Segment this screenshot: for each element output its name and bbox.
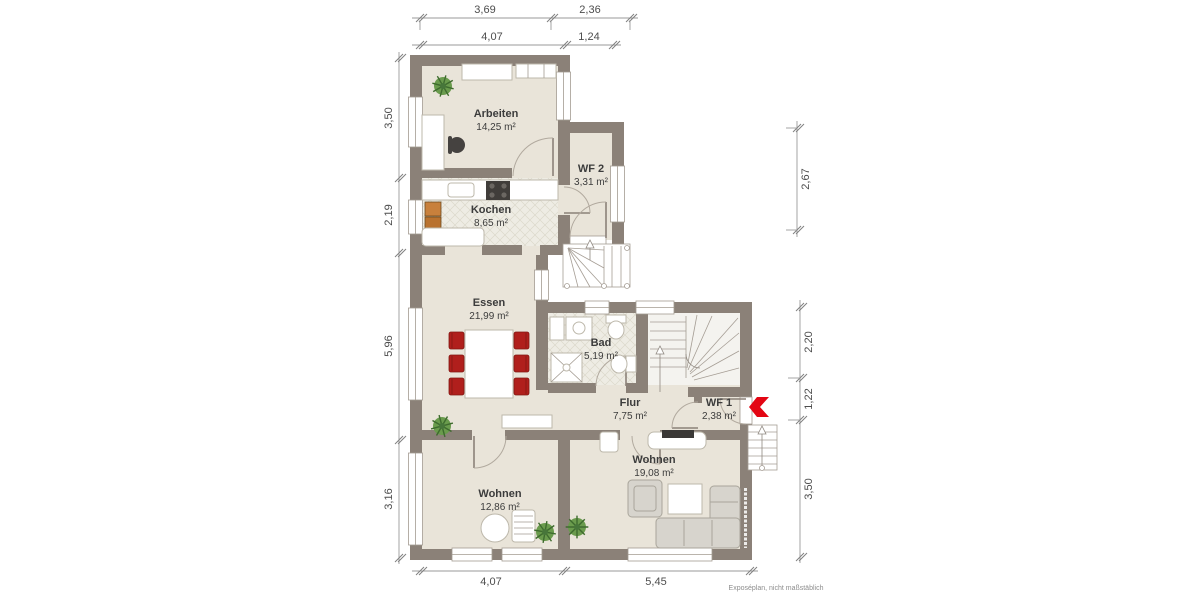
window-wohnen-gross-bottom: [628, 548, 712, 561]
dim-top-outer: 3,69 2,36: [412, 4, 638, 30]
kitchen-counter-lower: [422, 228, 484, 246]
window-bad-top: [585, 301, 609, 314]
window-essen-left: [409, 308, 423, 400]
svg-text:Wohnen: Wohnen: [478, 488, 521, 500]
svg-text:4,07: 4,07: [481, 31, 502, 43]
floorplan-drawing: Arbeiten14,25 m² WF 23,31 m² Kochen8,65 …: [0, 0, 1200, 600]
svg-text:12,86 m²: 12,86 m²: [480, 502, 520, 513]
svg-text:19,08 m²: 19,08 m²: [634, 468, 674, 479]
washing-machine: [566, 317, 592, 340]
svg-text:2,38 m²: 2,38 m²: [702, 411, 737, 422]
svg-text:7,75 m²: 7,75 m²: [613, 411, 648, 422]
footer-note: Exposéplan, nicht maßstäblich: [729, 585, 824, 592]
svg-text:1,22: 1,22: [803, 388, 815, 409]
oven: [425, 202, 441, 216]
dim-bottom: 4,07 5,45: [412, 567, 758, 588]
floorplan-page: Arbeiten14,25 m² WF 23,31 m² Kochen8,65 …: [0, 0, 1200, 600]
svg-text:Bad: Bad: [591, 337, 612, 349]
window-stairwell-top: [636, 301, 674, 314]
svg-text:Arbeiten: Arbeiten: [474, 108, 519, 120]
svg-text:2,36: 2,36: [579, 4, 600, 16]
coffee-table: [668, 484, 702, 514]
dim-left: 3,50 2,19 5,96 3,16: [383, 52, 406, 564]
svg-text:5,19 m²: 5,19 m²: [584, 351, 619, 362]
window-essen-right: [535, 270, 549, 300]
window-kochen-left: [409, 200, 423, 234]
svg-text:8,65 m²: 8,65 m²: [474, 218, 509, 229]
svg-text:Kochen: Kochen: [471, 204, 512, 216]
svg-text:3,16: 3,16: [383, 488, 395, 509]
entrance-steps: [748, 425, 777, 471]
exterior-stair-wf2: [563, 240, 630, 289]
dim-right-upper: 2,67: [786, 121, 812, 237]
sideboard: [502, 415, 552, 428]
desk: [422, 115, 444, 170]
svg-text:5,96: 5,96: [383, 335, 395, 356]
armchair-striped: [512, 510, 535, 542]
svg-text:3,50: 3,50: [383, 107, 395, 128]
window-wohnen-klein-bottom-2: [502, 548, 542, 561]
tv: [662, 430, 694, 438]
svg-text:Essen: Essen: [473, 297, 506, 309]
svg-text:3,50: 3,50: [803, 478, 815, 499]
svg-text:2,67: 2,67: [800, 168, 812, 189]
dim-right-lower: 2,20 1,22 3,50: [788, 300, 815, 563]
svg-text:2,20: 2,20: [803, 331, 815, 352]
svg-text:4,07: 4,07: [480, 576, 501, 588]
svg-text:21,99 m²: 21,99 m²: [469, 311, 509, 322]
window-wohnen-klein-bottom-1: [452, 548, 492, 561]
dining-table: [465, 330, 513, 398]
svg-text:WF 2: WF 2: [578, 163, 604, 175]
dim-top-inner: 4,07 1,24: [412, 31, 621, 49]
svg-text:1,24: 1,24: [578, 31, 599, 43]
svg-text:2,19: 2,19: [383, 204, 395, 225]
svg-text:Wohnen: Wohnen: [632, 454, 675, 466]
window-arbeiten-left: [409, 97, 423, 147]
svg-text:3,69: 3,69: [474, 4, 495, 16]
window-wohnen-left: [409, 453, 423, 545]
window-wf2-right: [611, 166, 625, 222]
entrance-opening: [740, 397, 752, 424]
svg-text:Flur: Flur: [620, 397, 641, 409]
bath-cabinet: [550, 317, 564, 340]
svg-text:14,25 m²: 14,25 m²: [476, 122, 516, 133]
svg-text:3,31 m²: 3,31 m²: [574, 177, 609, 188]
svg-text:5,45: 5,45: [645, 576, 666, 588]
svg-text:WF 1: WF 1: [706, 397, 732, 409]
window-arbeiten-right: [557, 72, 571, 120]
round-table: [481, 514, 509, 542]
stove: [486, 181, 510, 200]
